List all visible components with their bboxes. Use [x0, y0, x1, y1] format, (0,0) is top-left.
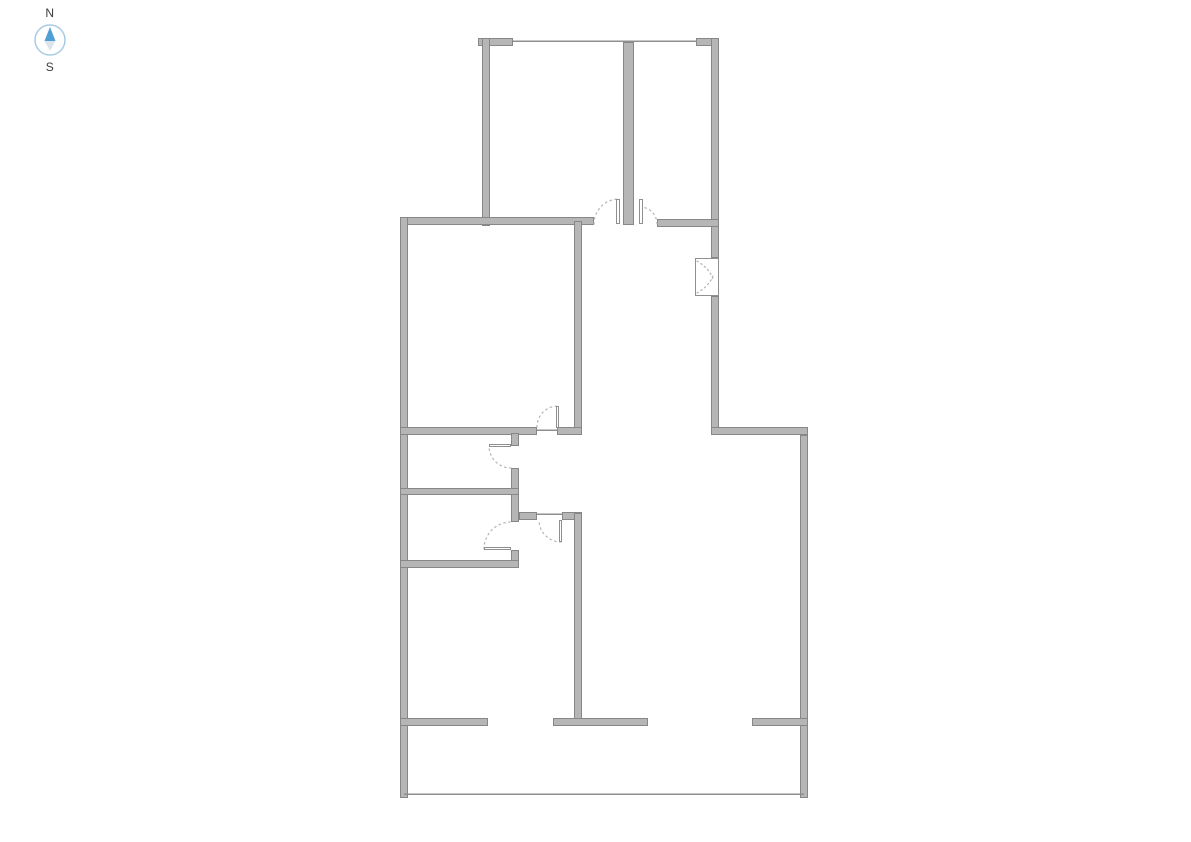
wall-segment [401, 489, 519, 495]
door-leaf [640, 200, 643, 224]
door-swing-arc [537, 406, 558, 427]
wall-segment [624, 43, 634, 225]
wall-segment [401, 218, 408, 798]
door-leaf [617, 200, 620, 224]
wall-segment [401, 719, 488, 726]
floor-plan-page: N S [0, 0, 1191, 842]
door-leaf [485, 548, 511, 550]
wall-segment [712, 297, 719, 435]
wall-segment [753, 719, 808, 726]
wall-segment [558, 428, 582, 435]
wall-segment [575, 514, 582, 726]
door-swing-arc [484, 522, 511, 549]
wall-segment [801, 436, 808, 798]
door-leaf [557, 407, 559, 428]
door-swing-arc [594, 199, 619, 224]
wall-segment [483, 39, 490, 226]
wall-segment [575, 222, 582, 434]
folding-door-box [696, 259, 719, 296]
door-swing-arc [539, 520, 561, 542]
wall-segment [401, 561, 519, 568]
floor-plan-canvas [0, 0, 1191, 842]
door-swing-arc [489, 446, 511, 468]
door-leaf [560, 521, 562, 542]
wall-segment [554, 719, 648, 726]
wall-segment [712, 428, 808, 435]
door-leaf [490, 445, 511, 447]
wall-segment [512, 434, 519, 446]
wall-segment [401, 218, 594, 225]
wall-segment [520, 513, 537, 520]
wall-segment [658, 220, 719, 227]
